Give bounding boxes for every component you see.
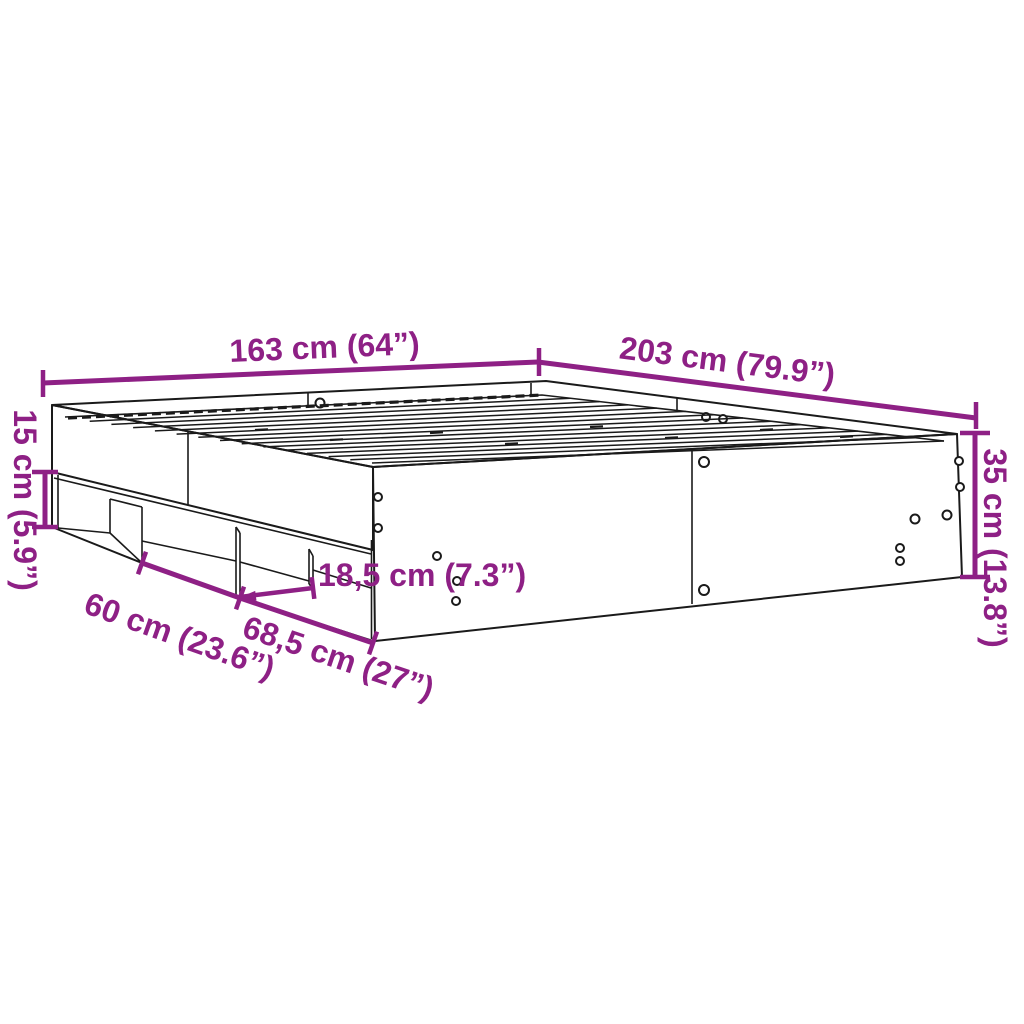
front-side-panel [373,434,962,641]
bed-frame-drawing [52,381,964,641]
left-panel-bottom-inner [54,478,371,554]
label-niche-depth: 18,5 cm (7.3”) [318,557,526,593]
slats [68,395,944,463]
diagram-canvas: 163 cm (64”) 203 cm (79.9”) 15 cm (5.9”)… [0,0,1024,1024]
dim-line-niche-left [142,563,240,598]
label-head-width: 163 cm (64”) [229,325,421,369]
label-frame-height: 35 cm (13.8”) [977,448,1013,647]
bed-frame-diagram: 163 cm (64”) 203 cm (79.9”) 15 cm (5.9”)… [0,0,1024,1024]
label-length: 203 cm (79.9”) [617,329,837,392]
label-plinth-height: 15 cm (5.9”) [7,409,43,590]
